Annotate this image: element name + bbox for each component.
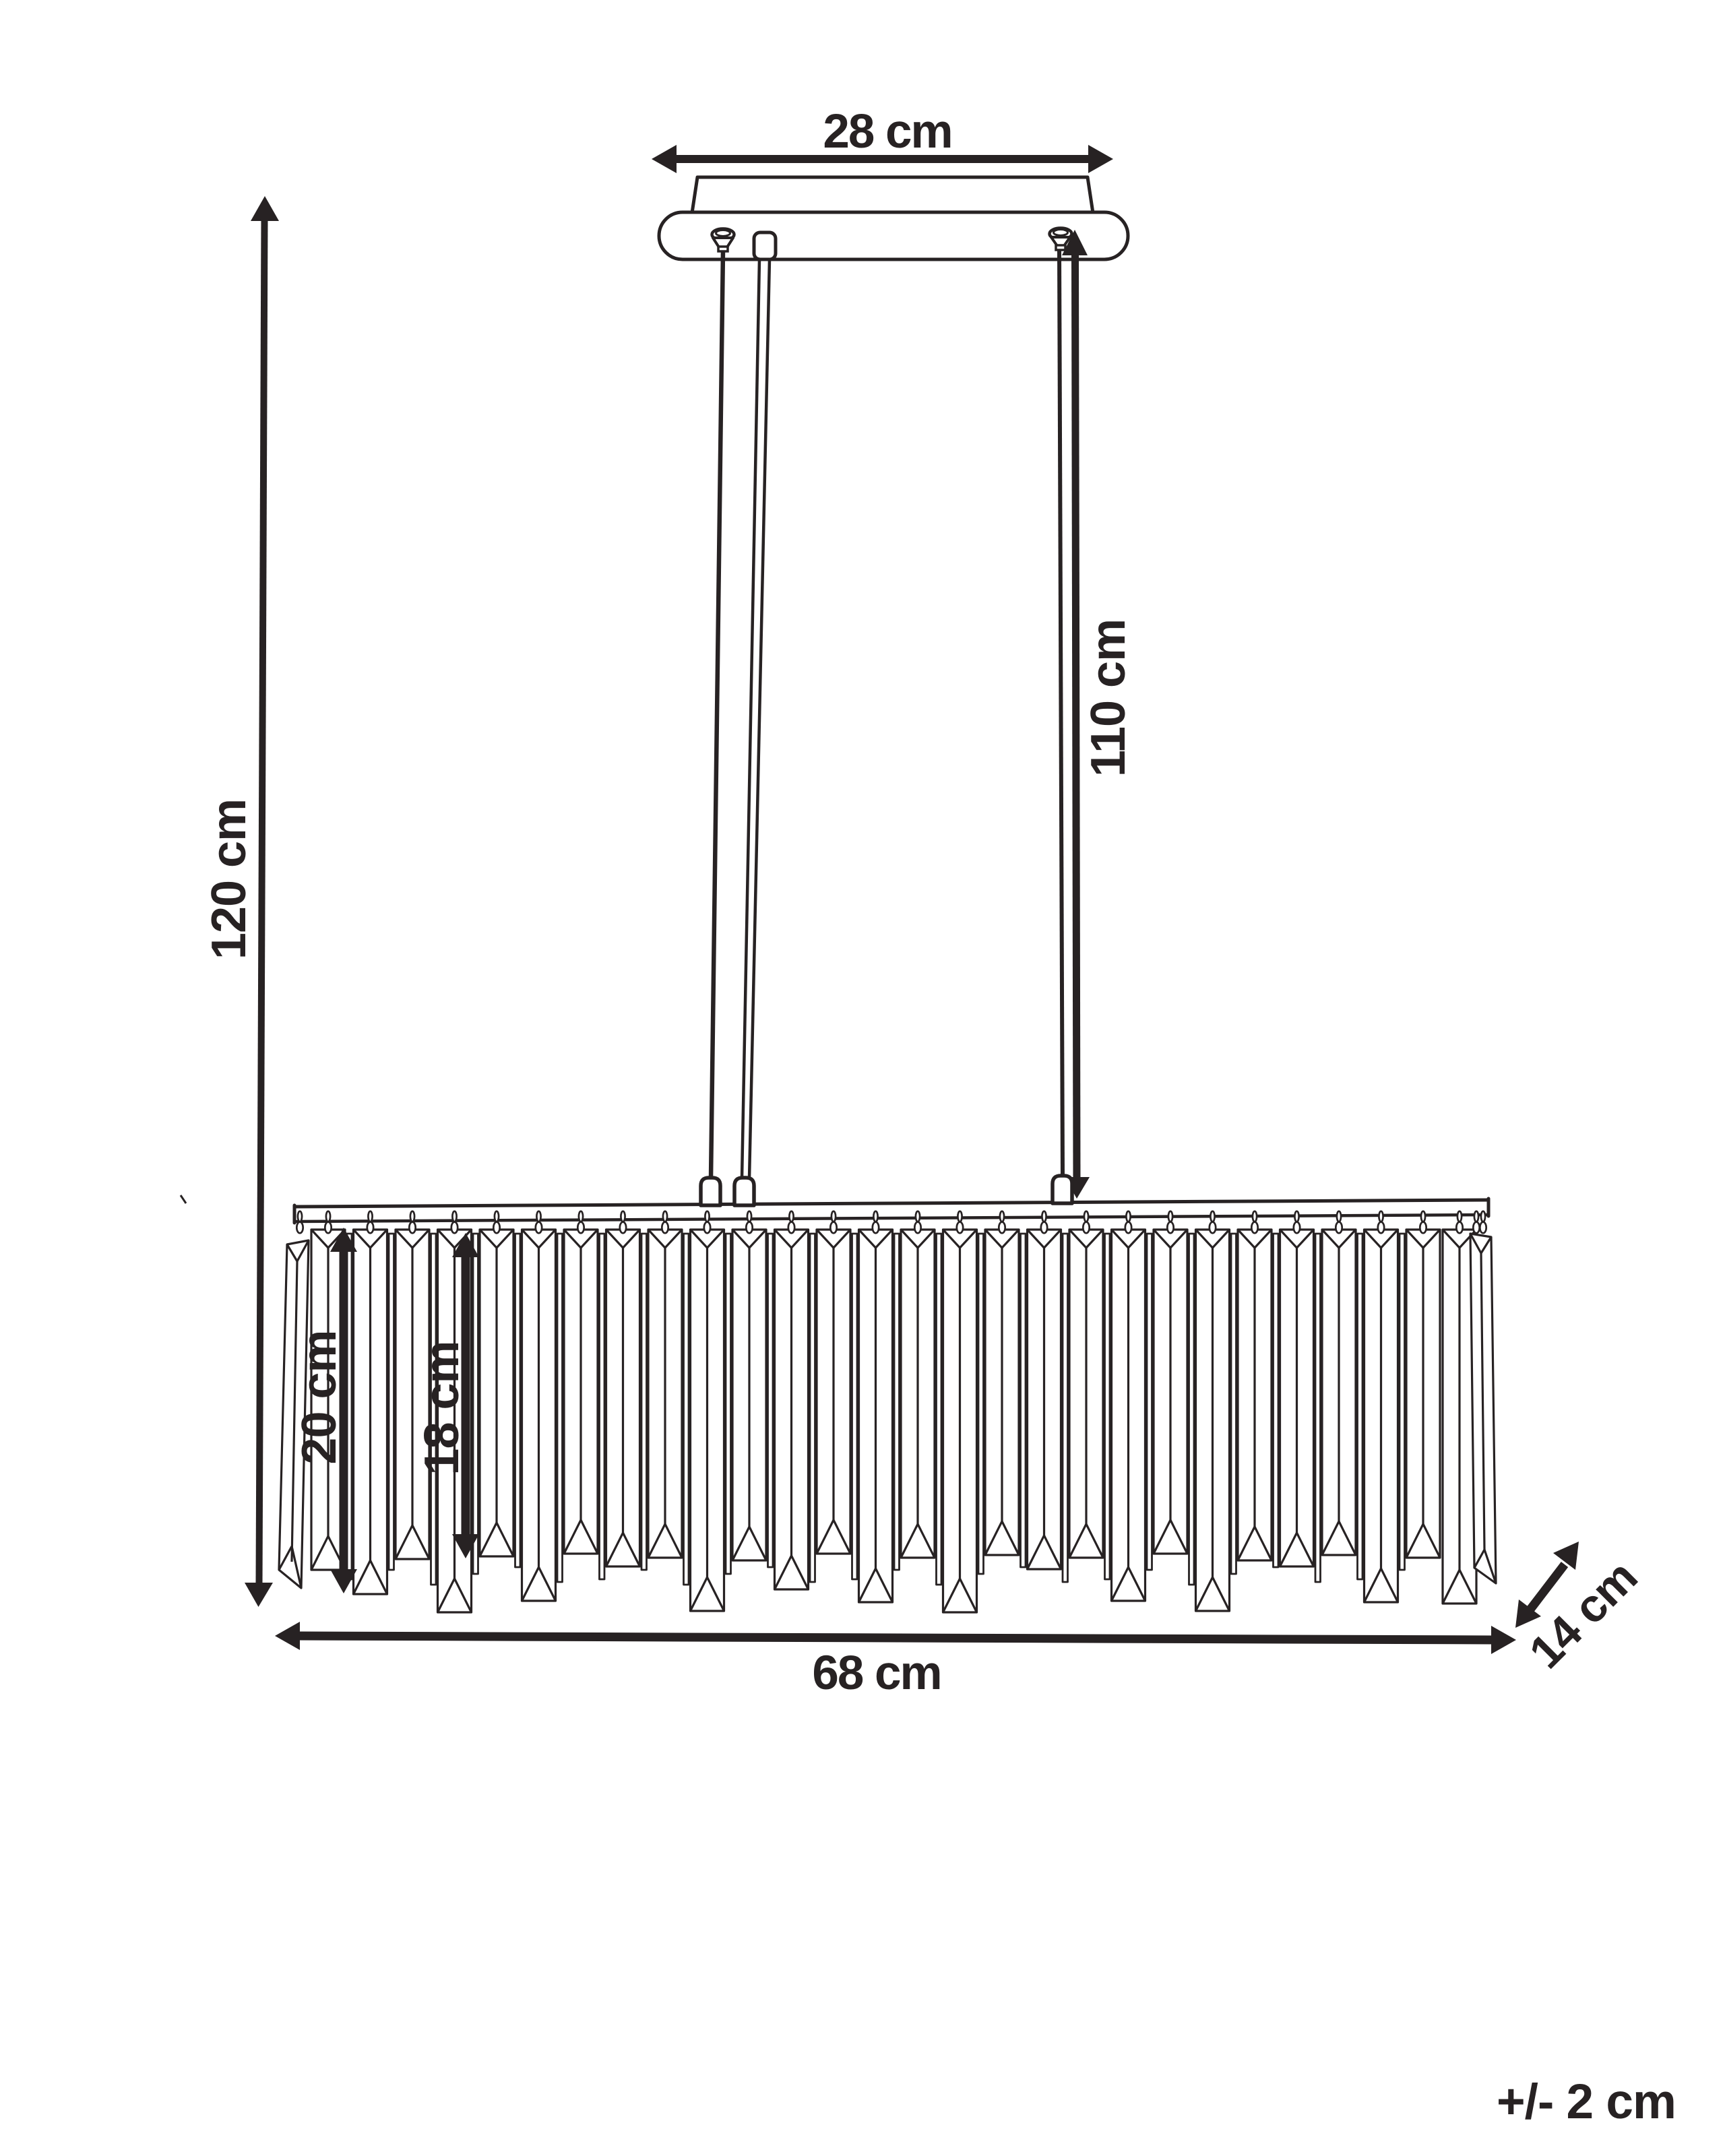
svg-text:18 cm: 18 cm — [415, 1341, 469, 1475]
svg-text:68 cm: 68 cm — [812, 1647, 941, 1700]
svg-text:28 cm: 28 cm — [823, 105, 951, 158]
svg-text:120 cm: 120 cm — [202, 799, 256, 959]
svg-text:110 cm: 110 cm — [1081, 619, 1135, 777]
svg-text:20 cm: 20 cm — [292, 1330, 346, 1464]
svg-text:+/- 2 cm: +/- 2 cm — [1497, 2074, 1676, 2129]
